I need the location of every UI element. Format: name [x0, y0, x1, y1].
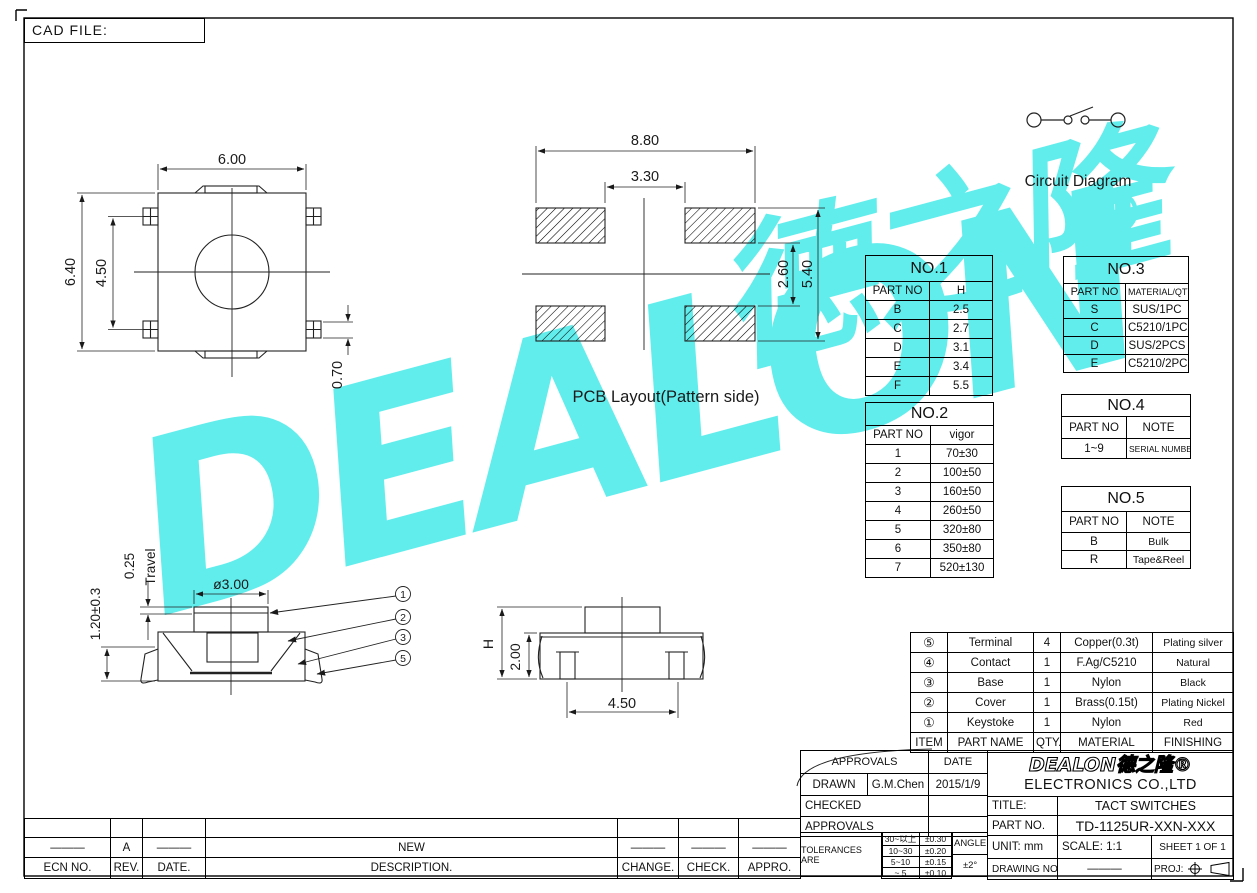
- company-cell: DEALON德之隆® ELECTRONICS CO.,LTD: [988, 751, 1234, 797]
- dim-top-lead: 0.70: [330, 361, 346, 389]
- material: F.Ag/C5210: [1061, 653, 1153, 673]
- table-row: 6350±80: [866, 540, 994, 559]
- material: Brass(0.15t): [1061, 693, 1153, 713]
- part-name: Cover: [948, 693, 1034, 713]
- dim-body: 2.00: [507, 643, 523, 670]
- value: SERIAL NUMBER: [1127, 439, 1191, 459]
- change: ———: [618, 838, 679, 858]
- part-no: C: [1064, 319, 1126, 337]
- title-value: TACT SWITCHES: [1058, 797, 1234, 816]
- checked-date: [929, 796, 988, 817]
- sheet-cell: SHEET 1 OF 1: [1152, 836, 1234, 859]
- part-no: 7: [866, 559, 931, 578]
- table-title: NO.1: [866, 256, 993, 282]
- projection-cell: PROJ:: [1152, 859, 1234, 880]
- finishing: Red: [1153, 713, 1234, 733]
- dim-top-height: 6.40: [63, 258, 79, 286]
- date-header: DATE: [929, 751, 988, 774]
- angle-label: ANGLE: [953, 833, 987, 855]
- table-row: 3160±50: [866, 483, 994, 502]
- col-header: CHANGE.: [618, 858, 679, 879]
- table-row: SSUS/1PC: [1064, 301, 1189, 319]
- tolerance-row: 5~10±0.15: [882, 857, 952, 868]
- top-view: 6.00 6.40 4.50 0.70: [63, 152, 353, 389]
- table-no2: NO.2 PART NO vigor 170±302100±503160±504…: [865, 402, 994, 578]
- part-no: B: [1062, 533, 1127, 551]
- dim-pcb-inner: 3.30: [631, 169, 659, 185]
- dim-stem-diameter: ø3.00: [213, 576, 249, 592]
- col-header: PART NO: [1062, 512, 1127, 533]
- unit-cell: UNIT: mm: [988, 836, 1058, 859]
- table-title: NO.5: [1062, 487, 1191, 512]
- part-balloons: 1 2 3 5: [270, 587, 411, 675]
- part-no: 1~9: [1062, 439, 1127, 459]
- tolerance-row: ~ 5±0.10: [882, 868, 952, 879]
- ecn-no: ———: [25, 838, 111, 858]
- title-label: TITLE:: [988, 797, 1058, 816]
- part-no: F: [866, 377, 930, 396]
- part-no: R: [1062, 551, 1127, 569]
- value: 2.5: [930, 301, 993, 320]
- qty: 1: [1034, 673, 1061, 693]
- tolerance-row: 30~以上±0.30: [882, 833, 952, 846]
- part-no: 1: [866, 445, 931, 464]
- tolerance: ±0.20: [920, 846, 952, 857]
- part-no: 4: [866, 502, 931, 521]
- side-view: H 2.00 4.50: [480, 597, 705, 718]
- range: 30~以上: [882, 833, 920, 846]
- value: 350±80: [931, 540, 994, 559]
- col-header: NOTE: [1127, 417, 1191, 439]
- col-header: PART NO: [866, 426, 931, 445]
- col-header: REV.: [111, 858, 143, 879]
- value: Tape&Reel: [1127, 551, 1191, 569]
- col-header: ECN NO.: [25, 858, 111, 879]
- value: 3.1: [930, 339, 993, 358]
- tolerance-row: 10~30±0.20: [882, 846, 952, 857]
- approvals-header: APPROVALS: [801, 751, 929, 774]
- title-block: DEALON德之隆® ELECTRONICS CO.,LTD TITLE: TA…: [987, 750, 1234, 880]
- tolerance: ±0.30: [920, 833, 952, 846]
- balloon-5: 5: [400, 653, 406, 665]
- balloon-2: 2: [400, 612, 406, 624]
- tolerances-label: TOLERANCES ARE: [801, 833, 883, 876]
- finishing: Natural: [1153, 653, 1234, 673]
- value: SUS/1PC: [1126, 301, 1189, 319]
- qty: 1: [1034, 693, 1061, 713]
- drawn-label: DRAWN: [801, 774, 868, 796]
- item-balloon: ③: [911, 673, 948, 693]
- table-title: NO.3: [1064, 257, 1189, 284]
- tolerance: ±0.15: [920, 857, 952, 868]
- table-title: NO.2: [866, 403, 994, 426]
- drawing-sheet: DEALON德之隆®: [0, 0, 1257, 893]
- col-header: PART NO: [1062, 417, 1127, 439]
- qty: 1: [1034, 653, 1061, 673]
- value: 320±80: [931, 521, 994, 540]
- revision-row: ——— A ——— NEW ——— ——— ———: [25, 838, 801, 858]
- balloon-1: 1: [400, 589, 406, 601]
- value: 100±50: [931, 464, 994, 483]
- range: 10~30: [882, 846, 920, 857]
- revision-header-row: ECN NO. REV. DATE. DESCRIPTION. CHANGE. …: [25, 858, 801, 879]
- bom-row: ③ Base 1 Nylon Black: [911, 673, 1234, 693]
- revision-empty-row: [25, 819, 801, 838]
- part-no: E: [1064, 355, 1126, 373]
- partno-value: TD-1125UR-XXN-XXX: [1058, 816, 1234, 836]
- table-row: 5320±80: [866, 521, 994, 540]
- value: 70±30: [931, 445, 994, 464]
- partno-label: PART NO.: [988, 816, 1058, 836]
- drawingno-value: ———: [1058, 859, 1152, 880]
- col-header: DESCRIPTION.: [206, 858, 618, 879]
- qty: 4: [1034, 633, 1061, 653]
- table-row: C2.7: [866, 320, 993, 339]
- finishing: Plating Nickel: [1153, 693, 1234, 713]
- item-balloon: ①: [911, 713, 948, 733]
- table-row: B2.5: [866, 301, 993, 320]
- table-row: F5.5: [866, 377, 993, 396]
- bom-row: ⑤ Terminal 4 Copper(0.3t) Plating silver: [911, 633, 1234, 653]
- value: 5.5: [930, 377, 993, 396]
- table-no1: NO.1 PART NO H B2.5C2.7D3.1E3.4F5.5: [865, 255, 993, 396]
- table-row: EC5210/2PCS: [1064, 355, 1189, 373]
- circuit-diagram: Circuit Diagram: [1025, 107, 1132, 190]
- table-row: D3.1: [866, 339, 993, 358]
- dim-top-inner: 4.50: [94, 259, 110, 287]
- col-header: PART NO: [1064, 284, 1126, 301]
- dim-top-width: 6.00: [218, 152, 246, 168]
- tolerances-table: 30~以上±0.3010~30±0.205~10±0.15~ 5±0.10: [881, 832, 952, 879]
- part-name: Keystoke: [948, 713, 1034, 733]
- part-no: D: [1064, 337, 1126, 355]
- part-no: S: [1064, 301, 1126, 319]
- col-header: vigor: [931, 426, 994, 445]
- value: 2.7: [930, 320, 993, 339]
- material: Nylon: [1061, 673, 1153, 693]
- part-no: D: [866, 339, 930, 358]
- company-logo: DEALON德之隆®: [990, 753, 1231, 777]
- col-header: MATERIAL/QTY: [1126, 284, 1189, 301]
- dim-pitch: 4.50: [608, 696, 636, 712]
- dim-pcb-gap: 2.60: [776, 260, 792, 288]
- material: Nylon: [1061, 713, 1153, 733]
- drawn-by: G.M.Chen: [868, 774, 929, 796]
- dim-travel: 0.25: [122, 553, 137, 579]
- dim-body-height: 1.20±0.3: [88, 588, 103, 640]
- projection-symbol-icon: [1185, 861, 1231, 877]
- item-balloon: ④: [911, 653, 948, 673]
- table-no4: NO.4 PART NO NOTE 1~9SERIAL NUMBER: [1061, 394, 1191, 459]
- part-no: E: [866, 358, 930, 377]
- material: Copper(0.3t): [1061, 633, 1153, 653]
- travel-label: Travel: [143, 548, 158, 585]
- company-name: ELECTRONICS CO.,LTD: [990, 777, 1231, 794]
- dim-pcb-outer: 8.80: [631, 133, 659, 149]
- pcb-caption: PCB Layout(Pattern side): [572, 388, 759, 406]
- check: ———: [679, 838, 739, 858]
- table-row: 1~9SERIAL NUMBER: [1062, 439, 1191, 459]
- front-section-view: ø3.00 0.25 Travel 1.20±0.3 1 2 3 5: [88, 548, 411, 695]
- angle-block: ANGLE ±2°: [952, 833, 987, 876]
- part-no: 6: [866, 540, 931, 559]
- col-header: CHECK.: [679, 858, 739, 879]
- description: NEW: [206, 838, 618, 858]
- angle-value: ±2°: [953, 855, 987, 876]
- part-no: 2: [866, 464, 931, 483]
- value: SUS/2PCS: [1126, 337, 1189, 355]
- item-balloon: ②: [911, 693, 948, 713]
- rev: A: [111, 838, 143, 858]
- appro: ———: [739, 838, 801, 858]
- table-row: 4260±50: [866, 502, 994, 521]
- part-no: B: [866, 301, 930, 320]
- part-no: C: [866, 320, 930, 339]
- range: ~ 5: [882, 868, 920, 879]
- value: C5210/1PC: [1126, 319, 1189, 337]
- table-no3: NO.3 PART NO MATERIAL/QTY SSUS/1PCCC5210…: [1063, 256, 1189, 373]
- finishing: Black: [1153, 673, 1234, 693]
- bom-row: ② Cover 1 Brass(0.15t) Plating Nickel: [911, 693, 1234, 713]
- table-title: NO.4: [1062, 395, 1191, 417]
- part-name: Contact: [948, 653, 1034, 673]
- col-header: APPRO.: [739, 858, 801, 879]
- cad-file-box: CAD FILE:: [24, 18, 205, 43]
- revision-table: ——— A ——— NEW ——— ——— ——— ECN NO. REV. D…: [24, 818, 801, 879]
- drawn-date: 2015/1/9: [929, 774, 988, 796]
- rev-date: ———: [143, 838, 206, 858]
- checked-label: CHECKED: [801, 796, 929, 817]
- table-row: 2100±50: [866, 464, 994, 483]
- table-row: E3.4: [866, 358, 993, 377]
- bom-row: ④ Contact 1 F.Ag/C5210 Natural: [911, 653, 1234, 673]
- table-row: CC5210/1PC: [1064, 319, 1189, 337]
- balloon-3: 3: [400, 632, 406, 644]
- proj-label: PROJ:: [1154, 864, 1183, 875]
- col-header: NOTE: [1127, 512, 1191, 533]
- tolerance: ±0.10: [920, 868, 952, 879]
- value: 3.4: [930, 358, 993, 377]
- table-row: DSUS/2PCS: [1064, 337, 1189, 355]
- table-row: RTape&Reel: [1062, 551, 1191, 569]
- scale-cell: SCALE: 1:1: [1058, 836, 1152, 859]
- circuit-caption: Circuit Diagram: [1025, 173, 1132, 190]
- finishing: Plating silver: [1153, 633, 1234, 653]
- table-row: 7520±130: [866, 559, 994, 578]
- item-balloon: ⑤: [911, 633, 948, 653]
- part-name: Terminal: [948, 633, 1034, 653]
- pcb-layout-view: 8.80 3.30 2.60 5.40 PCB Layout(Pattern s…: [522, 133, 825, 406]
- dim-pcb-pad-outer: 5.40: [800, 260, 816, 288]
- bom-row: ① Keystoke 1 Nylon Red: [911, 713, 1234, 733]
- bom-table: ⑤ Terminal 4 Copper(0.3t) Plating silver…: [910, 632, 1234, 753]
- table-no5: NO.5 PART NO NOTE BBulkRTape&Reel: [1061, 486, 1191, 569]
- value: Bulk: [1127, 533, 1191, 551]
- value: 260±50: [931, 502, 994, 521]
- col-header: PART NO: [866, 282, 930, 301]
- range: 5~10: [882, 857, 920, 868]
- table-row: BBulk: [1062, 533, 1191, 551]
- col-header: H: [930, 282, 993, 301]
- value: 520±130: [931, 559, 994, 578]
- part-no: 3: [866, 483, 931, 502]
- drawingno-label: DRAWING NO.: [988, 859, 1058, 880]
- dim-h-label: H: [480, 639, 496, 649]
- approvals-table: APPROVALS DATE DRAWN G.M.Chen 2015/1/9 C…: [800, 750, 988, 837]
- table-row: 170±30: [866, 445, 994, 464]
- col-header: DATE.: [143, 858, 206, 879]
- value: C5210/2PCS: [1126, 355, 1189, 373]
- part-no: 5: [866, 521, 931, 540]
- value: 160±50: [931, 483, 994, 502]
- qty: 1: [1034, 713, 1061, 733]
- part-name: Base: [948, 673, 1034, 693]
